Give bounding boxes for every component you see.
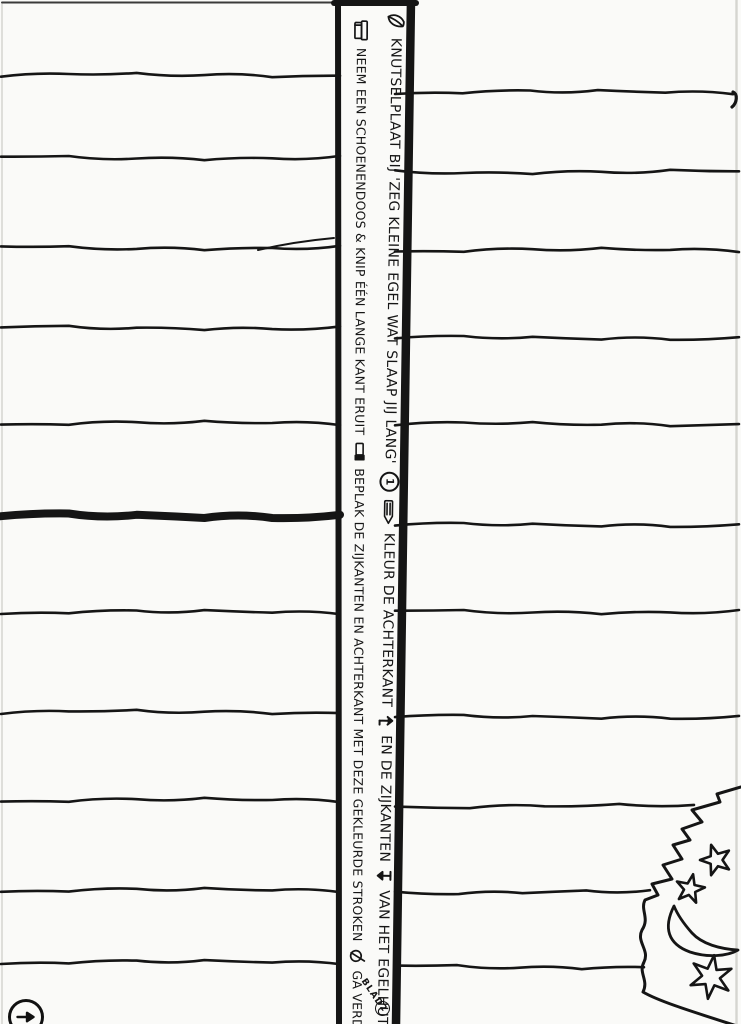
ruled-line-right: [395, 170, 739, 174]
ruled-line-left: [1, 156, 340, 160]
arrow-down-icon: [376, 870, 392, 882]
glue-stick-icon: [354, 442, 365, 461]
star-icon: [691, 955, 732, 999]
ruled-line-left: [1, 798, 340, 802]
step-1-badge: 1: [379, 472, 399, 492]
ruled-line-left: [1, 960, 340, 964]
ruled-line-left: [1, 888, 340, 892]
arrow-up-icon: [378, 715, 394, 727]
ruled-line-left: [1, 513, 340, 518]
ruled-line-right: [395, 890, 650, 894]
scanned-craft-sheet: KNUTSELPLAAT BIJ 'ZEG KLEINE EGEL WAT SL…: [0, 0, 741, 1024]
instruction-color-back: KLEUR DE ACHTERKANT: [378, 533, 396, 708]
ruled-line-left: [1, 610, 340, 614]
ruled-line-right: [395, 336, 739, 340]
ruled-line-left: [1, 246, 340, 250]
shoebox-icon: [353, 20, 369, 41]
instruction-title: KNUTSELPLAAT BIJ 'ZEG KLEINE EGEL WAT SL…: [382, 38, 404, 464]
ruled-line-right: [395, 804, 694, 808]
ruled-line-left: [1, 710, 340, 714]
pencil-icon: [383, 500, 394, 525]
circle-slash-icon: [349, 948, 366, 963]
ruled-line-right: [395, 422, 739, 426]
ruled-line-left: [1, 326, 340, 330]
leaf-icon: [386, 12, 406, 30]
instruction-glue: BEPLAK DE ZIJKANTEN EN ACHTERKANT MET DE…: [350, 468, 367, 941]
ruled-line-left: [1, 73, 340, 77]
star-icon: [700, 845, 729, 875]
ruled-line-right: [395, 965, 644, 969]
instruction-sides: EN DE ZIJKANTEN: [376, 735, 394, 862]
instruction-shoebox: NEEM EEN SCHOENENDOOS & KNIP ÉÉN LANGE K…: [352, 48, 369, 435]
ruled-line-right: [395, 715, 739, 719]
ruled-line-right: [395, 90, 733, 94]
ruled-line-left: [1, 421, 340, 425]
strip-instruction-line-2: NEEM EEN SCHOENENDOOS & KNIP ÉÉN LANGE K…: [345, 20, 374, 1020]
ruled-line-right: [395, 248, 739, 252]
strip-vertical-border: [338, 0, 339, 1024]
moon-icon: [668, 906, 738, 956]
ruled-line-right: [395, 523, 739, 527]
star-icon: [677, 874, 705, 902]
ruled-line-right: [395, 610, 739, 614]
